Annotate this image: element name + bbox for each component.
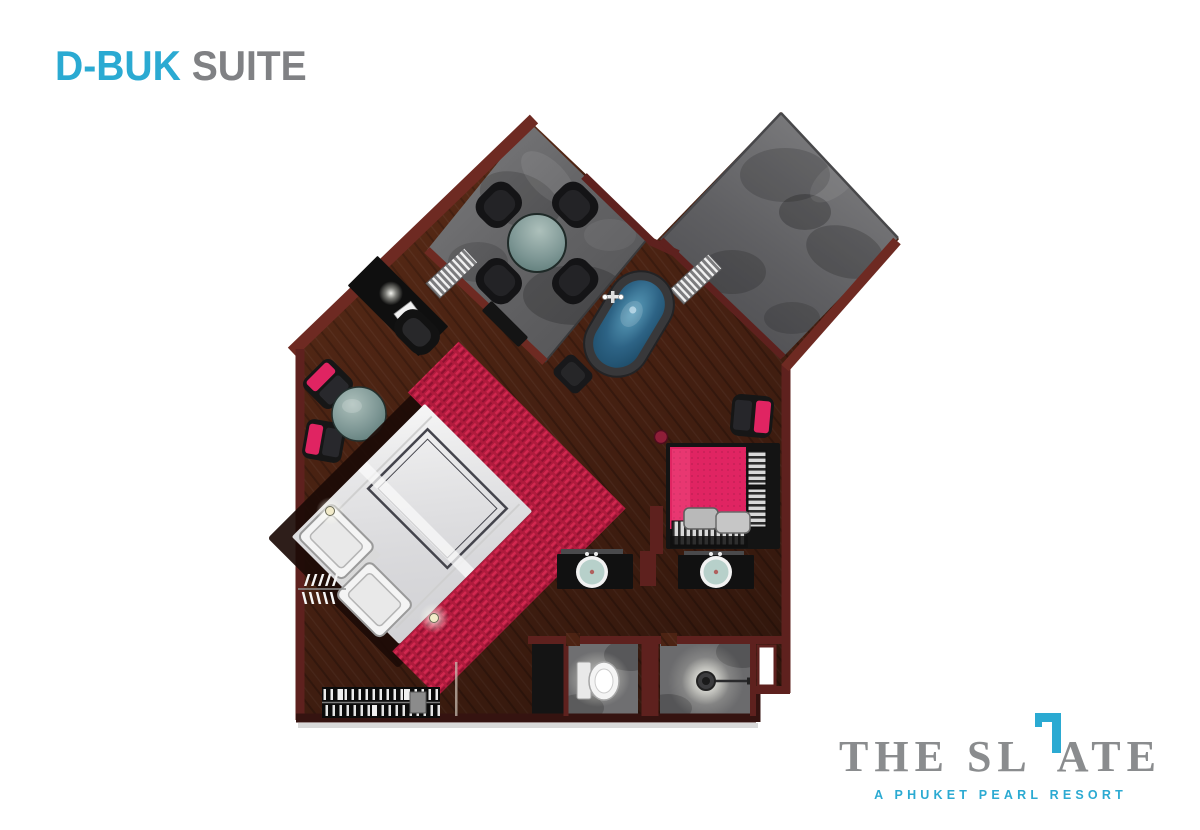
- step-notch: [758, 646, 775, 686]
- brand-wordmark-pre: THE SL: [839, 732, 1033, 781]
- brand-logo: THE SLATE A PHUKET PEARL RESORT: [839, 725, 1162, 802]
- brand-mark-icon: [1035, 713, 1061, 767]
- closet-room: [532, 644, 566, 716]
- bedside-lamp-2: [419, 603, 449, 633]
- stool-dot: [655, 431, 668, 444]
- door-leaf: [455, 662, 458, 716]
- toilet: [577, 662, 619, 700]
- brand-wordmark: THE SLATE: [839, 725, 1162, 779]
- accent-chair: [729, 393, 775, 439]
- daybed: [666, 443, 780, 549]
- brand-tagline: A PHUKET PEARL RESORT: [839, 788, 1162, 802]
- bedside-lamp-1: [316, 497, 344, 525]
- page-root: D-BUK SUITE: [0, 0, 1200, 830]
- floorplan-image: [0, 0, 1200, 830]
- wardrobe: [322, 687, 440, 718]
- vanity-left: [557, 549, 633, 589]
- brand-wordmark-post: ATE: [1057, 732, 1162, 781]
- vanity-right: [678, 551, 754, 589]
- shower-room: [644, 636, 768, 722]
